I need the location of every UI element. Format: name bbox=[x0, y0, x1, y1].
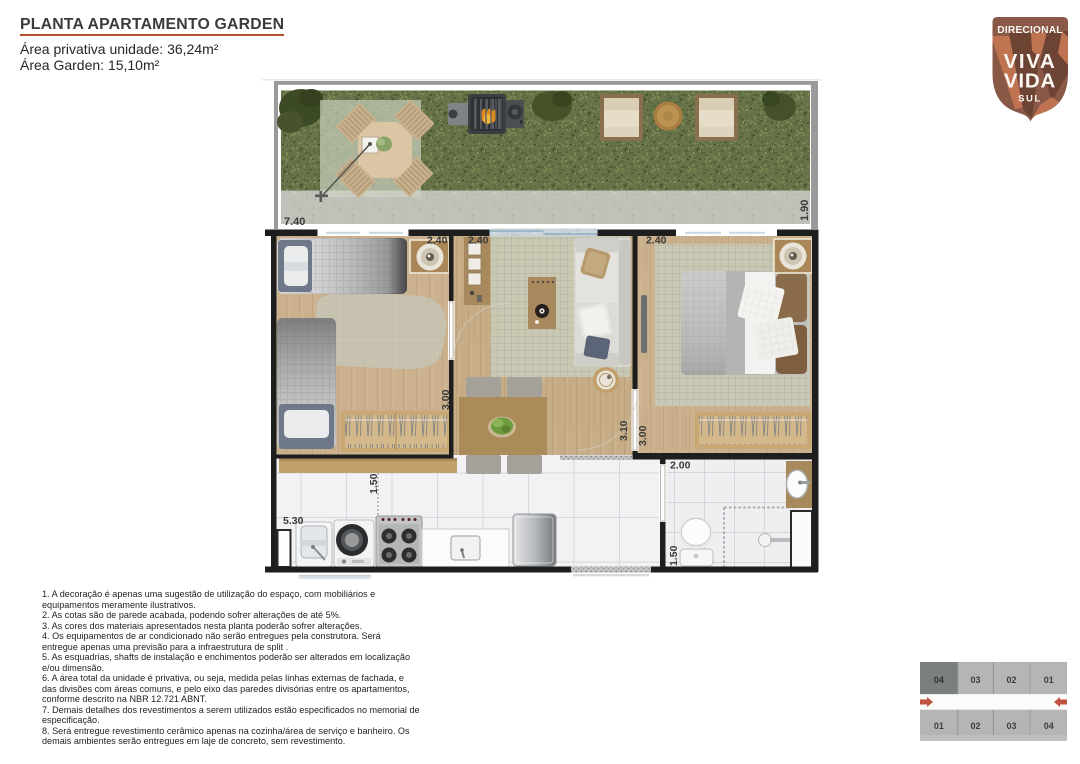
svg-text:02: 02 bbox=[1006, 675, 1016, 685]
svg-text:02: 02 bbox=[970, 721, 980, 731]
svg-text:2.40: 2.40 bbox=[427, 235, 448, 247]
svg-text:3.00: 3.00 bbox=[637, 425, 649, 446]
svg-text:2.40: 2.40 bbox=[646, 235, 667, 247]
svg-text:01: 01 bbox=[934, 721, 944, 731]
svg-text:01: 01 bbox=[1044, 675, 1054, 685]
svg-text:03: 03 bbox=[970, 675, 980, 685]
svg-text:2.00: 2.00 bbox=[670, 460, 691, 472]
svg-text:3.10: 3.10 bbox=[618, 420, 630, 441]
svg-text:2.40: 2.40 bbox=[468, 235, 489, 247]
svg-text:1.50: 1.50 bbox=[668, 545, 680, 566]
svg-text:04: 04 bbox=[934, 675, 944, 685]
svg-text:5.30: 5.30 bbox=[283, 515, 304, 527]
svg-text:3.00: 3.00 bbox=[440, 389, 452, 410]
svg-text:04: 04 bbox=[1044, 721, 1054, 731]
svg-text:7.40: 7.40 bbox=[284, 216, 305, 228]
svg-text:1.90: 1.90 bbox=[799, 200, 811, 221]
svg-text:03: 03 bbox=[1006, 721, 1016, 731]
